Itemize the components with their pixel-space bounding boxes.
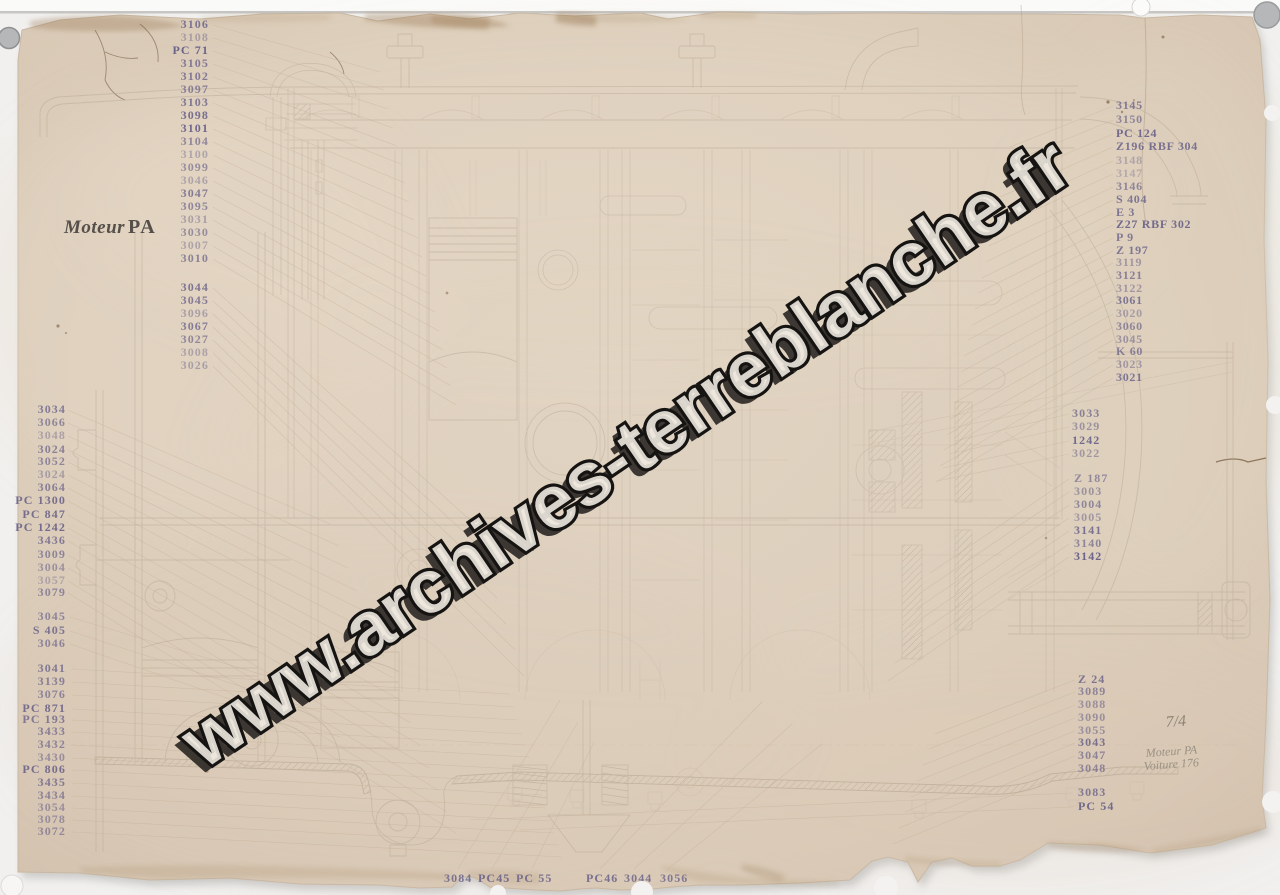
svg-text:3142: 3142 <box>1074 549 1102 563</box>
svg-text:3084: 3084 <box>444 871 472 885</box>
svg-text:3020: 3020 <box>1116 306 1143 320</box>
svg-text:3045: 3045 <box>181 293 209 307</box>
svg-text:3034: 3034 <box>38 402 66 416</box>
svg-text:3064: 3064 <box>38 480 66 494</box>
svg-text:3146: 3146 <box>1116 179 1143 193</box>
svg-text:3046: 3046 <box>38 636 66 650</box>
svg-text:3009: 3009 <box>38 547 66 561</box>
svg-text:3023: 3023 <box>1116 357 1143 371</box>
svg-text:3103: 3103 <box>181 95 209 109</box>
svg-text:3022: 3022 <box>1072 446 1100 460</box>
svg-text:3072: 3072 <box>38 824 66 838</box>
svg-text:3056: 3056 <box>660 871 688 885</box>
svg-text:3088: 3088 <box>1078 697 1106 711</box>
svg-text:PC 1300: PC 1300 <box>15 493 66 507</box>
svg-text:3433: 3433 <box>38 724 66 738</box>
svg-text:PC 55: PC 55 <box>516 871 553 885</box>
svg-text:3044: 3044 <box>181 280 209 294</box>
svg-text:3060: 3060 <box>1116 319 1143 333</box>
svg-text:3101: 3101 <box>181 121 209 135</box>
svg-text:PC 806: PC 806 <box>22 762 66 776</box>
svg-text:PC46: PC46 <box>586 871 618 885</box>
svg-text:3150: 3150 <box>1116 112 1143 126</box>
svg-text:3148: 3148 <box>1116 153 1143 167</box>
svg-text:3095: 3095 <box>181 199 209 213</box>
svg-text:3108: 3108 <box>181 30 209 44</box>
svg-text:3098: 3098 <box>181 108 209 122</box>
svg-text:3104: 3104 <box>181 134 209 148</box>
svg-text:3048: 3048 <box>38 428 66 442</box>
svg-text:PC 124: PC 124 <box>1116 126 1157 140</box>
svg-text:3140: 3140 <box>1074 536 1102 550</box>
svg-text:PC 1242: PC 1242 <box>15 520 66 534</box>
svg-text:7/4: 7/4 <box>1165 713 1187 731</box>
svg-text:Moteur: Moteur <box>63 217 125 238</box>
svg-text:3047: 3047 <box>181 186 209 200</box>
svg-text:3061: 3061 <box>1116 293 1143 307</box>
svg-text:Z 187: Z 187 <box>1074 471 1109 485</box>
svg-text:K 60: K 60 <box>1116 344 1143 358</box>
svg-text:3033: 3033 <box>1072 406 1100 420</box>
svg-text:3102: 3102 <box>181 69 209 83</box>
svg-text:Z27 RBF 302: Z27 RBF 302 <box>1116 217 1191 231</box>
svg-text:3106: 3106 <box>181 17 209 31</box>
svg-text:3147: 3147 <box>1116 166 1143 180</box>
svg-text:3027: 3027 <box>181 332 209 346</box>
svg-text:3083: 3083 <box>1078 785 1106 799</box>
svg-text:PA: PA <box>128 216 156 238</box>
svg-text:3041: 3041 <box>38 661 66 675</box>
svg-text:3043: 3043 <box>1078 735 1106 749</box>
svg-text:3021: 3021 <box>1116 370 1143 384</box>
svg-text:3052: 3052 <box>38 454 66 468</box>
svg-text:3024: 3024 <box>38 467 66 481</box>
svg-text:3139: 3139 <box>38 674 66 688</box>
svg-text:3432: 3432 <box>38 737 66 751</box>
svg-text:3435: 3435 <box>38 775 66 789</box>
svg-text:3008: 3008 <box>181 345 209 359</box>
svg-text:1242: 1242 <box>1072 433 1100 447</box>
svg-text:3097: 3097 <box>181 82 209 96</box>
svg-text:3067: 3067 <box>181 319 209 333</box>
svg-text:3046: 3046 <box>181 173 209 187</box>
svg-text:3030: 3030 <box>181 225 209 239</box>
svg-text:3047: 3047 <box>1078 748 1106 762</box>
svg-text:3010: 3010 <box>181 251 209 265</box>
svg-text:PC 847: PC 847 <box>22 507 66 521</box>
svg-text:3026: 3026 <box>181 358 209 372</box>
svg-text:3099: 3099 <box>181 160 209 174</box>
svg-text:3121: 3121 <box>1116 268 1143 282</box>
svg-text:3145: 3145 <box>1116 98 1143 112</box>
svg-text:3090: 3090 <box>1078 710 1106 724</box>
svg-text:3007: 3007 <box>181 238 209 252</box>
svg-text:Z196 RBF 304: Z196 RBF 304 <box>1116 139 1198 153</box>
svg-text:3141: 3141 <box>1074 523 1102 537</box>
svg-text:S 404: S 404 <box>1116 192 1147 206</box>
svg-text:3105: 3105 <box>181 56 209 70</box>
svg-text:3079: 3079 <box>38 585 66 599</box>
svg-text:3045: 3045 <box>38 609 66 623</box>
svg-text:3089: 3089 <box>1078 684 1106 698</box>
svg-text:3100: 3100 <box>181 147 209 161</box>
svg-text:3003: 3003 <box>1074 484 1102 498</box>
svg-text:PC 71: PC 71 <box>173 43 210 57</box>
svg-text:3004: 3004 <box>1074 497 1102 511</box>
svg-text:3005: 3005 <box>1074 510 1102 524</box>
svg-text:P 9: P 9 <box>1116 230 1134 244</box>
svg-text:3066: 3066 <box>38 415 66 429</box>
svg-text:PC 54: PC 54 <box>1078 799 1115 813</box>
svg-text:3119: 3119 <box>1116 255 1142 269</box>
svg-text:3031: 3031 <box>181 212 209 226</box>
svg-text:3029: 3029 <box>1072 419 1100 433</box>
svg-text:3004: 3004 <box>38 560 66 574</box>
svg-text:3436: 3436 <box>38 533 66 547</box>
svg-text:PC45: PC45 <box>478 871 510 885</box>
svg-text:3076: 3076 <box>38 687 66 701</box>
svg-text:S 405: S 405 <box>33 623 66 637</box>
svg-text:3048: 3048 <box>1078 761 1106 775</box>
svg-text:3096: 3096 <box>181 306 209 320</box>
